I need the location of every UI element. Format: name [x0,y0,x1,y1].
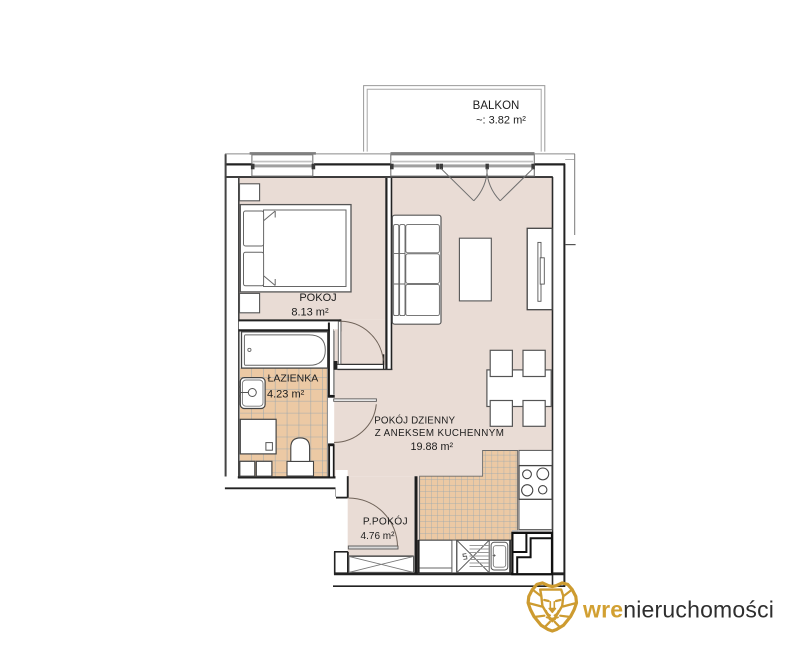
svg-text:POKÓJ DZIENNY: POKÓJ DZIENNY [374,416,455,427]
svg-text:wrenieruchomości: wrenieruchomości [582,597,774,623]
svg-text:P.POKÓJ: P.POKÓJ [363,515,408,528]
svg-text:Z ANEKSEM KUCHENNYM: Z ANEKSEM KUCHENNYM [375,428,505,439]
svg-text:19.88 m²: 19.88 m² [410,441,453,453]
svg-text:4.76 m²: 4.76 m² [361,531,396,542]
svg-text:4.23 m²: 4.23 m² [267,389,305,401]
svg-text:BALKON: BALKON [473,100,520,112]
svg-text:8.13 m²: 8.13 m² [291,307,329,319]
svg-text:POKOJ: POKOJ [299,292,336,304]
svg-text:~: 3.82 m²: ~: 3.82 m² [476,115,526,127]
svg-text:ŁAZIENKA: ŁAZIENKA [268,373,319,385]
